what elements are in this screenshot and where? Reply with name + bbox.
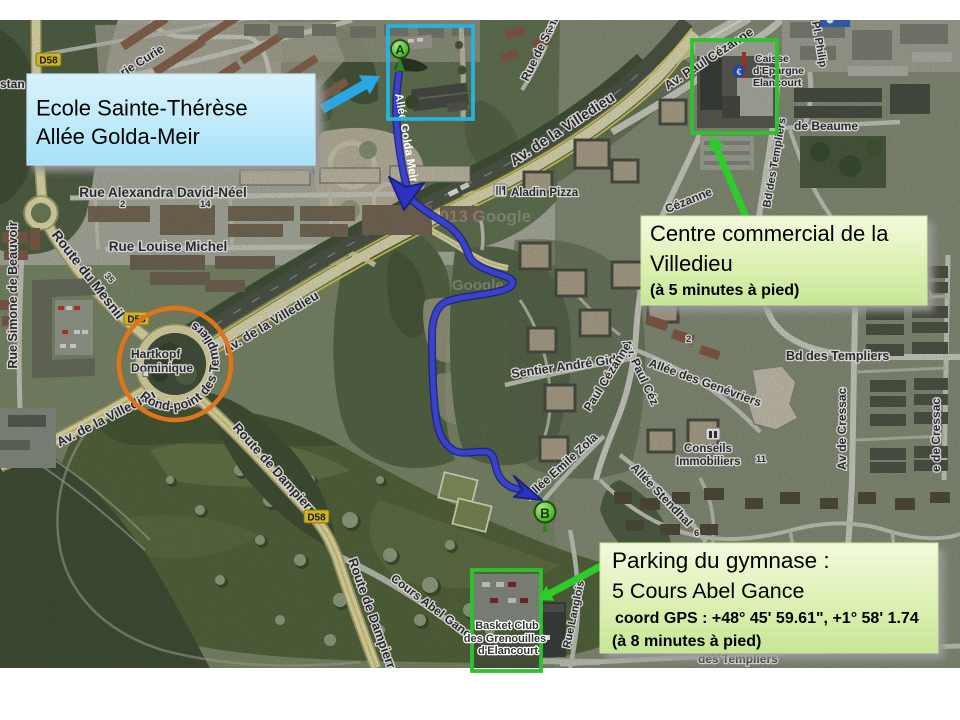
svg-text:5 Cours Abel Gance: 5 Cours Abel Gance xyxy=(612,579,804,603)
svg-text:Villedieu: Villedieu xyxy=(650,251,733,276)
svg-text:Parking du gymnase :: Parking du gymnase : xyxy=(612,548,830,573)
svg-text:coord GPS : +48° 45' 59.61", +: coord GPS : +48° 45' 59.61", +1° 58' 1.7… xyxy=(615,610,919,627)
svg-text:A: A xyxy=(395,43,404,57)
svg-text:d'Elancourt: d'Elancourt xyxy=(478,645,538,657)
svg-text:Basket Club: Basket Club xyxy=(475,620,539,632)
svg-text:(à 8 minutes à pied): (à 8 minutes à pied) xyxy=(612,633,761,650)
svg-text:des Grenouilles: des Grenouilles xyxy=(464,633,547,645)
svg-text:B: B xyxy=(540,506,550,521)
svg-text:Ecole Sainte-Thérèse: Ecole Sainte-Thérèse xyxy=(36,96,248,121)
svg-text:Centre commercial de la: Centre commercial de la xyxy=(650,221,889,246)
svg-text:(à 5 minutes à pied): (à 5 minutes à pied) xyxy=(650,282,799,299)
svg-text:Allée Golda-Meir: Allée Golda-Meir xyxy=(36,124,200,149)
